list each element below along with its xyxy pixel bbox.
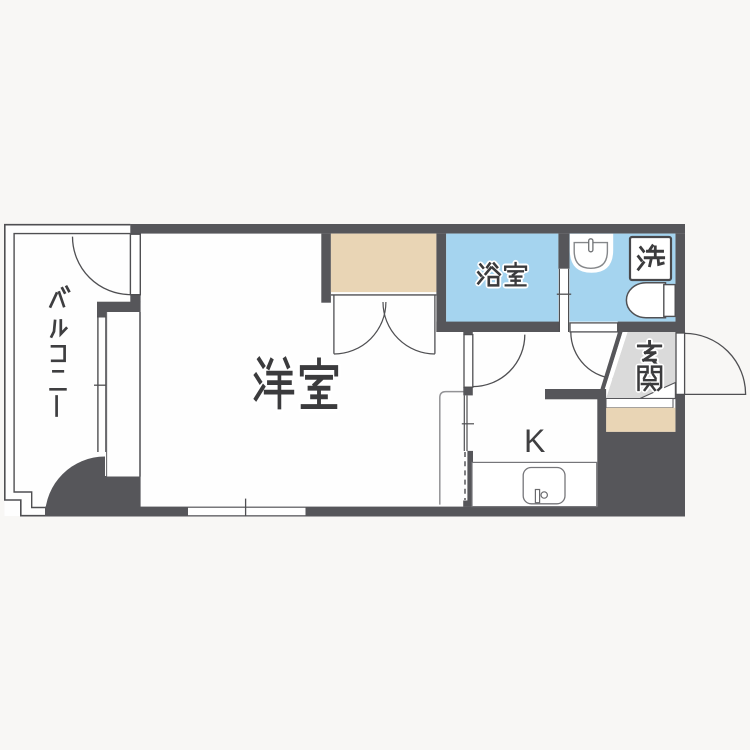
svg-text:K: K xyxy=(524,423,545,459)
